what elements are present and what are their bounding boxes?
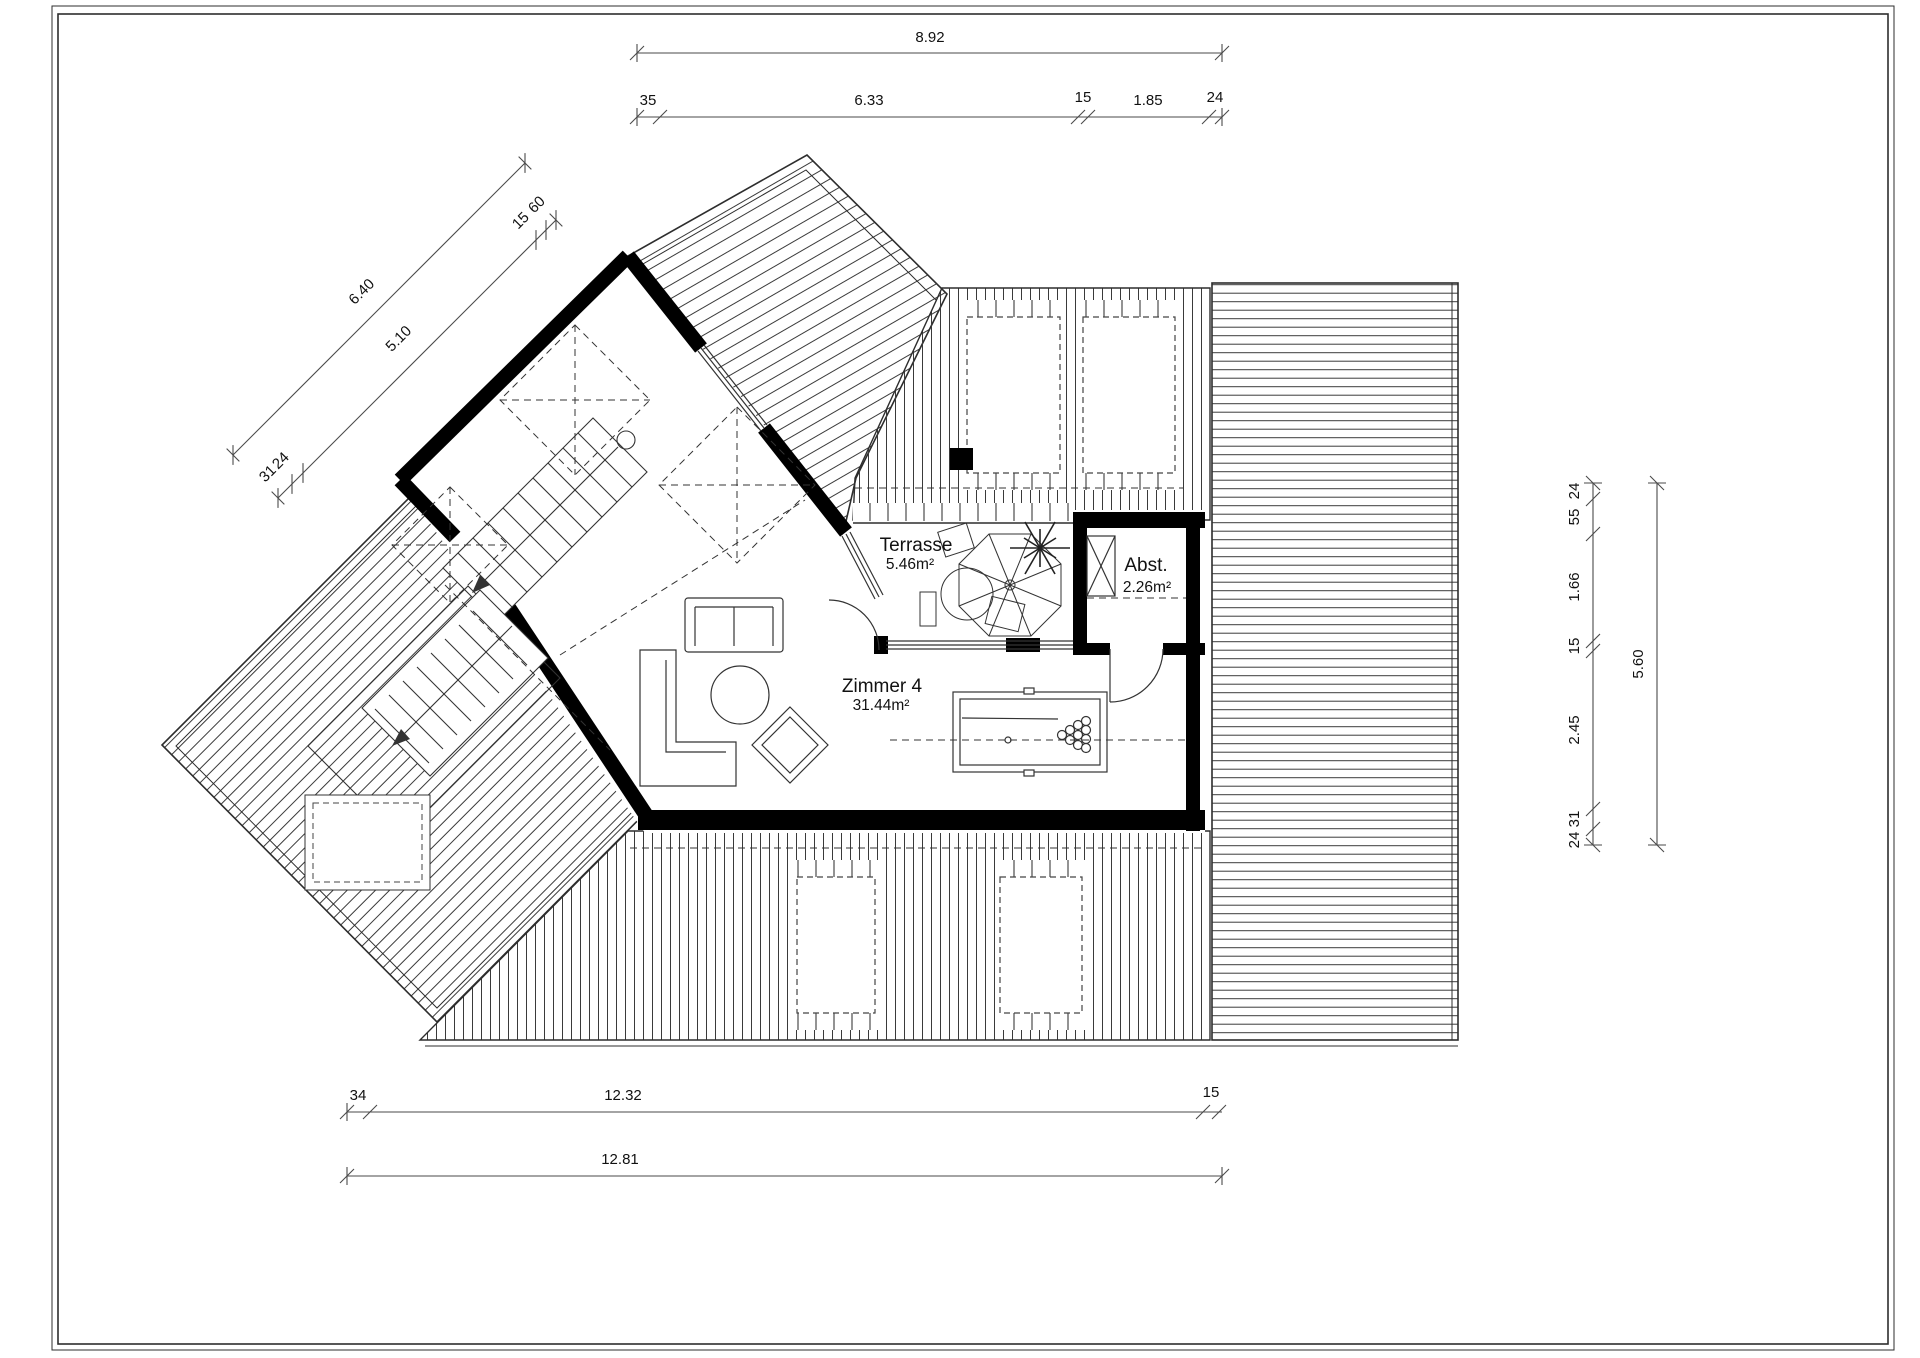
skylight-top-2 [1079,300,1179,490]
terrasse-name: Terrasse [880,535,953,556]
svg-text:24: 24 [1566,483,1583,500]
skylight-bottom-1 [793,860,879,1030]
floor-plan-canvas: Terrasse 5.46m² Abst. 2.26m² Zimmer 4 31… [0,0,1920,1358]
zimmer4-name: Zimmer 4 [842,676,923,697]
skylight-bottom-2 [996,860,1086,1030]
terrasse-area: 5.46m² [886,556,934,573]
dim-top-total-label: 8.92 [915,29,944,46]
floor-plan-page: Terrasse 5.46m² Abst. 2.26m² Zimmer 4 31… [0,0,1920,1358]
zimmer4-area: 31.44m² [853,697,910,714]
svg-text:1.85: 1.85 [1133,92,1162,109]
dim-right-segments: 24 55 1.66 15 2.45 31 24 [1566,476,1602,852]
svg-text:15: 15 [1203,1084,1220,1101]
svg-text:1.66: 1.66 [1566,572,1583,601]
coffee-table [711,666,769,724]
dim-bottom-segments: 34 12.32 15 [340,1084,1226,1121]
dim-left-total-label: 6.40 [345,275,378,308]
svg-text:31: 31 [1566,811,1583,828]
svg-text:15: 15 [1075,89,1092,106]
dim-right-total: 5.60 [1630,476,1666,852]
svg-text:60: 60 [525,193,549,217]
svg-text:2.45: 2.45 [1566,715,1583,744]
dim-right-total-label: 5.60 [1630,649,1647,678]
svg-text:35: 35 [640,92,657,109]
svg-text:55: 55 [1566,509,1583,526]
dim-top-total: 8.92 [630,29,1229,62]
skylight-lower-left [305,795,430,890]
svg-text:12.32: 12.32 [604,1087,642,1104]
billiard-table [953,688,1107,776]
svg-text:24: 24 [1566,832,1583,849]
dim-bottom-total-label: 12.81 [601,1151,639,1168]
chimney [950,448,973,470]
svg-text:15: 15 [1566,638,1583,655]
terrace-wall-end-block [874,636,888,654]
shaft-box [1087,536,1115,596]
svg-text:15: 15 [509,209,533,233]
svg-text:34: 34 [350,1087,367,1104]
abst-name: Abst. [1124,555,1167,576]
svg-text:6.33: 6.33 [854,92,883,109]
dim-bottom-total: 12.81 [340,1151,1229,1185]
svg-text:24: 24 [1207,89,1224,106]
dim-left-main-label: 5.10 [382,322,415,355]
skylight-top-1 [963,300,1064,490]
abst-area: 2.26m² [1123,579,1171,596]
roof-right [1212,283,1458,1040]
sofa [685,598,783,652]
terrace-roof-comb [853,503,1073,523]
dim-top-segments: 35 6.33 15 1.85 24 [630,89,1229,126]
